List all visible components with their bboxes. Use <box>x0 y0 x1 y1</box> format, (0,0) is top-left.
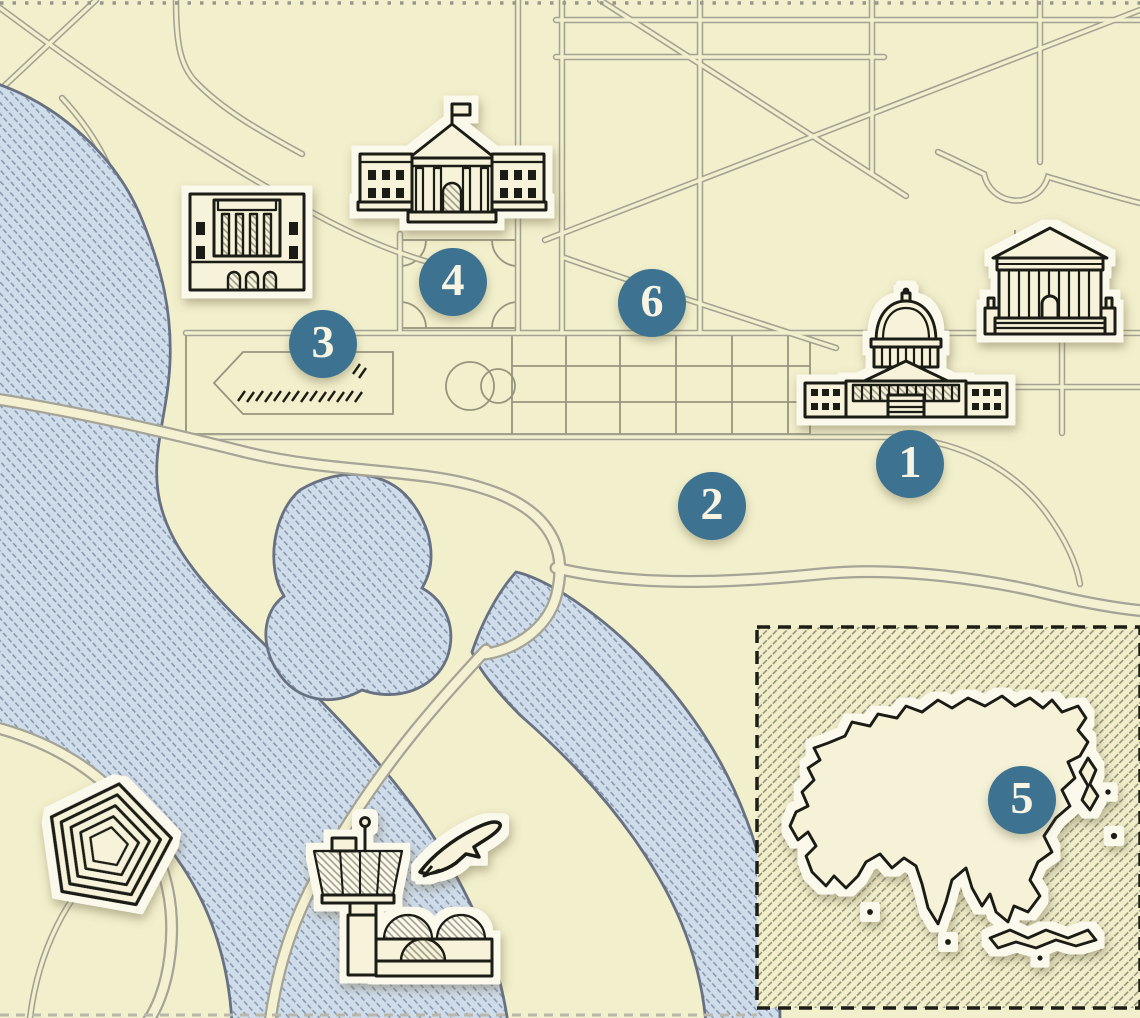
marker-number: 4 <box>442 257 465 303</box>
map-marker-1[interactable]: 1 <box>876 430 944 498</box>
map-marker-5[interactable]: 5 <box>988 766 1056 834</box>
flag-icon <box>452 104 470 115</box>
map-marker-3[interactable]: 3 <box>289 310 357 378</box>
map-artwork <box>0 0 1140 1018</box>
memorial-building-icon[interactable] <box>190 194 304 290</box>
asia-inset-panel <box>757 627 1140 1008</box>
map-marker-2[interactable]: 2 <box>678 472 746 540</box>
tower-cab <box>314 851 402 895</box>
marker-number: 5 <box>1011 775 1034 821</box>
marker-number: 2 <box>701 481 724 527</box>
marker-number: 6 <box>641 278 664 324</box>
marker-number: 3 <box>312 319 335 365</box>
map-marker-4[interactable]: 4 <box>419 248 487 316</box>
marker-number: 1 <box>899 439 922 485</box>
map-marker-6[interactable]: 6 <box>618 269 686 337</box>
indonesia-islands <box>990 930 1096 948</box>
dc-illustrated-map: 1 2 3 4 5 6 <box>0 0 1140 1018</box>
